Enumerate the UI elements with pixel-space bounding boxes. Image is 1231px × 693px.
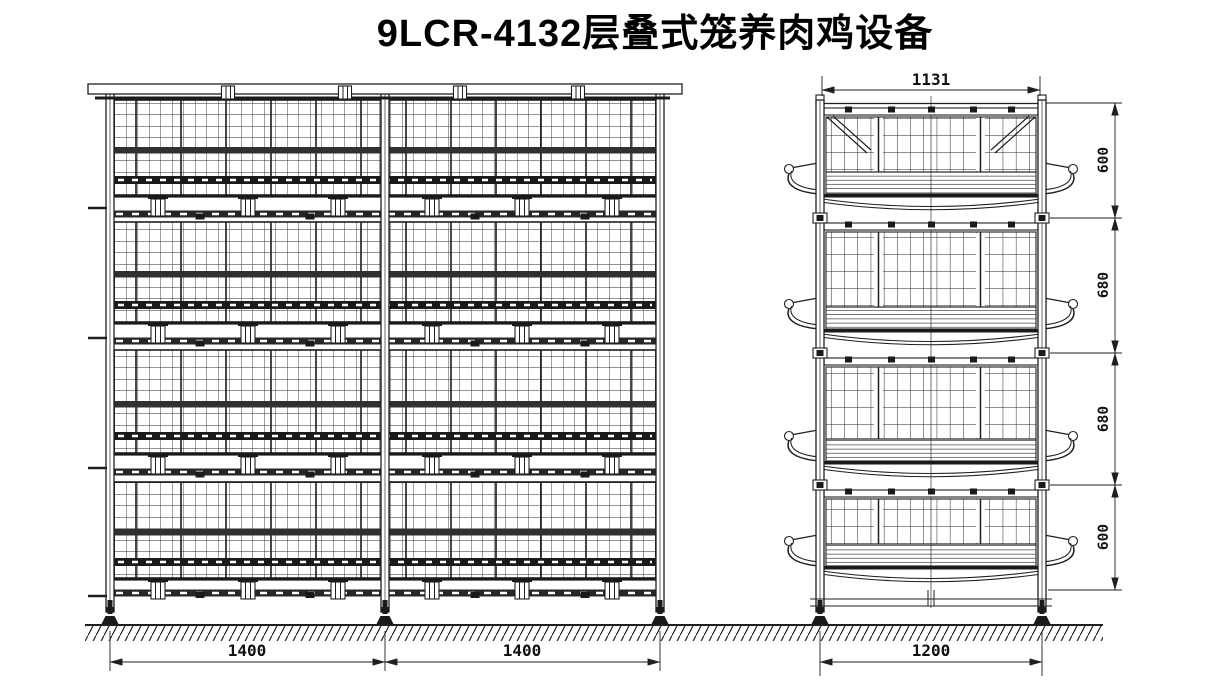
- front-post-center: [381, 92, 389, 612]
- dim-label-tier-height-2: 680: [1096, 272, 1112, 298]
- slat-floor: [826, 172, 1036, 194]
- front-view: [88, 84, 682, 625]
- front-foot-left: [101, 600, 119, 625]
- dim-label-front-bay-2: 1400: [503, 641, 542, 660]
- slat-floor: [826, 307, 1036, 329]
- front-post-right: [656, 92, 664, 612]
- feeder-trough-right: [1042, 429, 1078, 461]
- dim-label-side-top-width: 1131: [912, 70, 951, 89]
- slat-floor: [826, 544, 1036, 566]
- front-foot-center: [376, 600, 394, 625]
- side-foot-right: [1033, 600, 1051, 625]
- dim-label-front-bay-1: 1400: [228, 641, 267, 660]
- front-top-beam: [88, 84, 682, 100]
- dim-side-tier-heights: 600 680 680 600: [1046, 103, 1122, 590]
- dim-label-tier-height-3: 680: [1096, 406, 1112, 432]
- side-tier-3: [785, 357, 1078, 477]
- feeder-trough-right: [1042, 297, 1078, 329]
- side-tier-2: [785, 222, 1078, 345]
- feeder-trough-left: [785, 162, 821, 194]
- front-feet: [101, 600, 669, 625]
- dim-side-top-width: 1131: [822, 70, 1040, 96]
- feeder-trough-left: [785, 429, 821, 461]
- feeder-trough-right: [1042, 162, 1078, 194]
- slat-floor: [826, 439, 1036, 461]
- front-post-left: [88, 92, 114, 612]
- drawing-title: 9LCR-4132层叠式笼养肉鸡设备: [377, 13, 933, 55]
- front-foot-right: [651, 600, 669, 625]
- dim-label-side-bottom-width: 1200: [912, 641, 951, 660]
- dim-label-tier-height-1: 600: [1096, 147, 1112, 173]
- feeder-trough-right: [1042, 534, 1078, 566]
- feeder-trough-left: [785, 297, 821, 329]
- drawing-canvas: 9LCR-4132层叠式笼养肉鸡设备: [0, 0, 1231, 693]
- ground-hatching: [85, 626, 1103, 642]
- side-view: [785, 95, 1078, 625]
- side-tier-1: [785, 107, 1078, 210]
- ground-line: [85, 625, 1103, 641]
- dim-label-tier-height-4: 600: [1096, 524, 1112, 550]
- feeder-trough-left: [785, 534, 821, 566]
- side-foot-left: [811, 600, 829, 625]
- side-tier-4: [785, 489, 1078, 582]
